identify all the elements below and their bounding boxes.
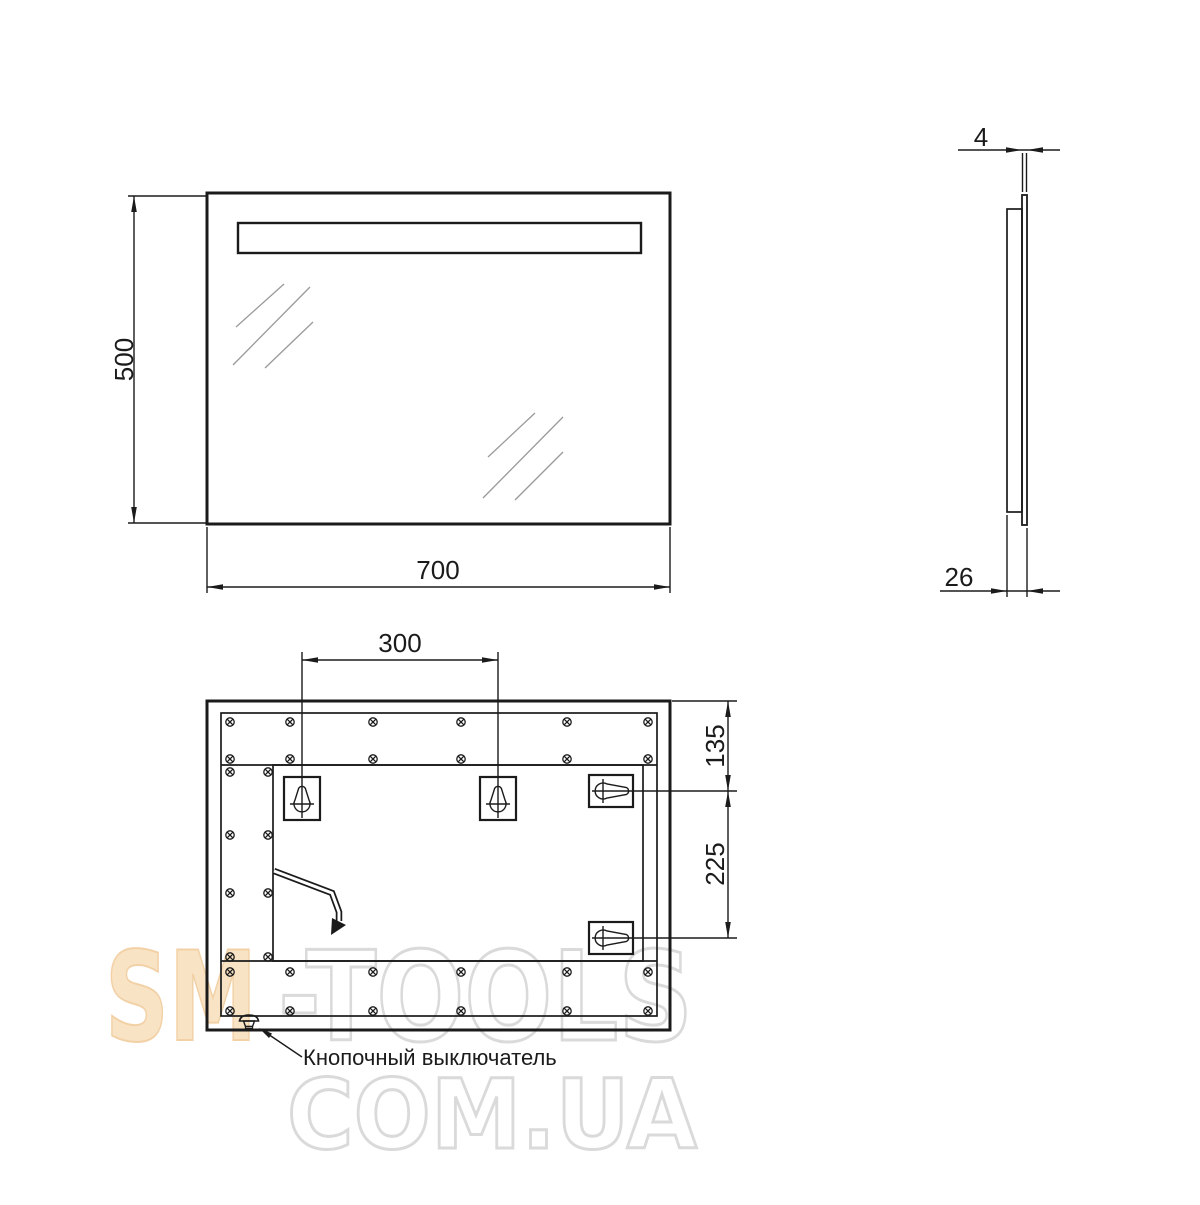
screw-icon <box>264 831 272 839</box>
screw-icon <box>264 953 272 961</box>
side-view: 4 26 <box>940 122 1060 597</box>
watermark-domain: COM.UA <box>287 1059 697 1171</box>
back-bracket-spacing-dimension: 300 <box>302 628 498 818</box>
screw-icon <box>226 889 234 897</box>
screw-icon <box>457 755 465 763</box>
screw-icon <box>369 718 377 726</box>
screw-icon <box>286 718 294 726</box>
screw-icon <box>226 755 234 763</box>
side-depth-dimension: 26 <box>940 515 1060 597</box>
side-backing-outline <box>1007 209 1022 512</box>
screw-icon <box>644 718 652 726</box>
glass-shine-lines <box>233 284 563 500</box>
screw-icon <box>644 755 652 763</box>
watermark-brand-accent: SM <box>105 926 257 1070</box>
screw-icon <box>264 889 272 897</box>
technical-drawing-page: SM -TOOLS COM.UA 500 <box>0 0 1200 1200</box>
screw-icon <box>226 831 234 839</box>
switch-label: Кнопочный выключатель <box>303 1045 557 1070</box>
front-mirror-outline <box>207 193 670 524</box>
back-offset-dimensions: 135 225 <box>592 701 737 938</box>
screw-icon <box>264 768 272 776</box>
screw-icon <box>457 718 465 726</box>
screw-icon <box>563 755 571 763</box>
front-light-strip <box>238 223 641 253</box>
side-glass-dimension: 4 <box>958 122 1060 192</box>
screw-icon <box>369 755 377 763</box>
front-view: 500 700 <box>109 193 670 593</box>
side-depth-value: 26 <box>945 562 974 592</box>
mirror-technical-drawing: SM -TOOLS COM.UA 500 <box>0 0 1200 1200</box>
side-glass-value: 4 <box>974 122 988 152</box>
back-side-offset-value: 225 <box>700 842 730 885</box>
front-height-dimension: 500 <box>109 196 207 523</box>
back-top-offset-value: 135 <box>700 724 730 767</box>
screw-icon <box>226 718 234 726</box>
front-width-value: 700 <box>416 555 459 585</box>
front-width-dimension: 700 <box>207 527 670 593</box>
back-bracket-spacing-value: 300 <box>378 628 421 658</box>
side-glass-outline <box>1022 195 1027 525</box>
front-height-value: 500 <box>109 338 139 381</box>
screw-icon <box>563 718 571 726</box>
screw-icon <box>286 755 294 763</box>
screw-icon <box>226 768 234 776</box>
